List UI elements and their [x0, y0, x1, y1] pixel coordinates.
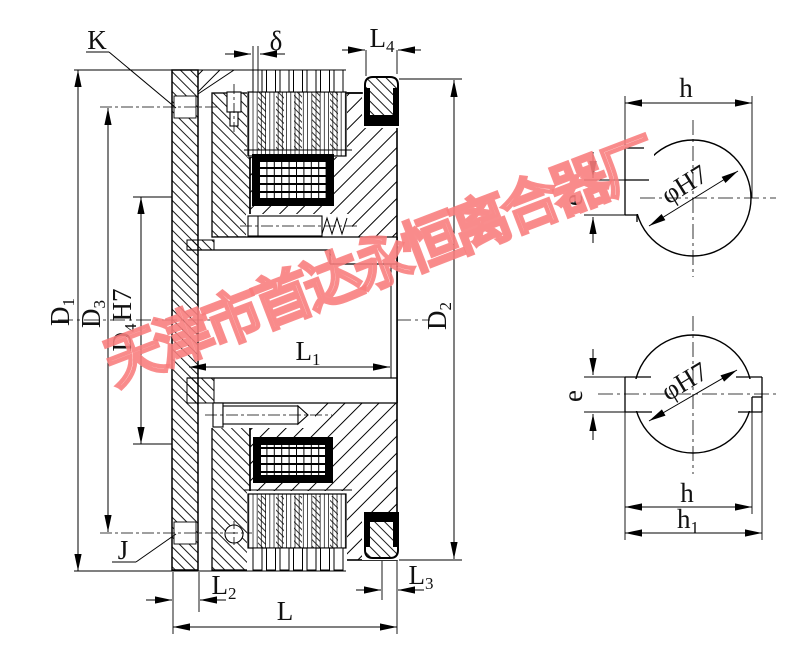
- label-J: J: [118, 535, 129, 565]
- label-L3: L3: [409, 560, 434, 593]
- friction-pack-top: [244, 70, 352, 156]
- main-section-view: K δ L4 D1 D3 D4H7 D2 L1 J L2 L3 L: [45, 23, 462, 634]
- label-h1-bottom: h1: [677, 504, 699, 537]
- clutch-engineering-drawing: K δ L4 D1 D3 D4H7 D2 L1 J L2 L3 L: [0, 0, 800, 663]
- label-h-top: h: [679, 73, 693, 103]
- coil-top: [252, 154, 334, 206]
- label-D1: D1: [45, 298, 78, 326]
- label-L: L: [277, 596, 294, 626]
- disc-spline-tabs-bottom: [253, 548, 343, 570]
- label-delta: δ: [270, 26, 283, 56]
- label-D3: D3: [76, 300, 109, 328]
- label-L2: L2: [212, 570, 237, 603]
- label-e-bottom: e: [558, 390, 588, 402]
- label-L4: L4: [370, 23, 396, 56]
- label-D2: D2: [422, 302, 455, 330]
- dim-L4: [342, 50, 421, 76]
- label-D4H7: D4H7: [107, 289, 140, 352]
- callout-K-leader: [86, 52, 176, 108]
- label-e-top: e: [558, 194, 588, 206]
- detail-view-top: h e φH7: [558, 73, 776, 277]
- slip-ring-top: [365, 77, 398, 125]
- dim-D4H7: [133, 197, 172, 444]
- drawing-canvas: K δ L4 D1 D3 D4H7 D2 L1 J L2 L3 L: [0, 0, 800, 663]
- coil-bottom: [253, 437, 333, 483]
- slip-ring-bottom: [365, 513, 398, 558]
- detail-view-bottom: e φH7 h h1: [558, 316, 780, 540]
- label-K: K: [87, 25, 107, 55]
- disc-spline-tabs-top: [253, 70, 343, 92]
- friction-pack-bottom: [244, 490, 352, 570]
